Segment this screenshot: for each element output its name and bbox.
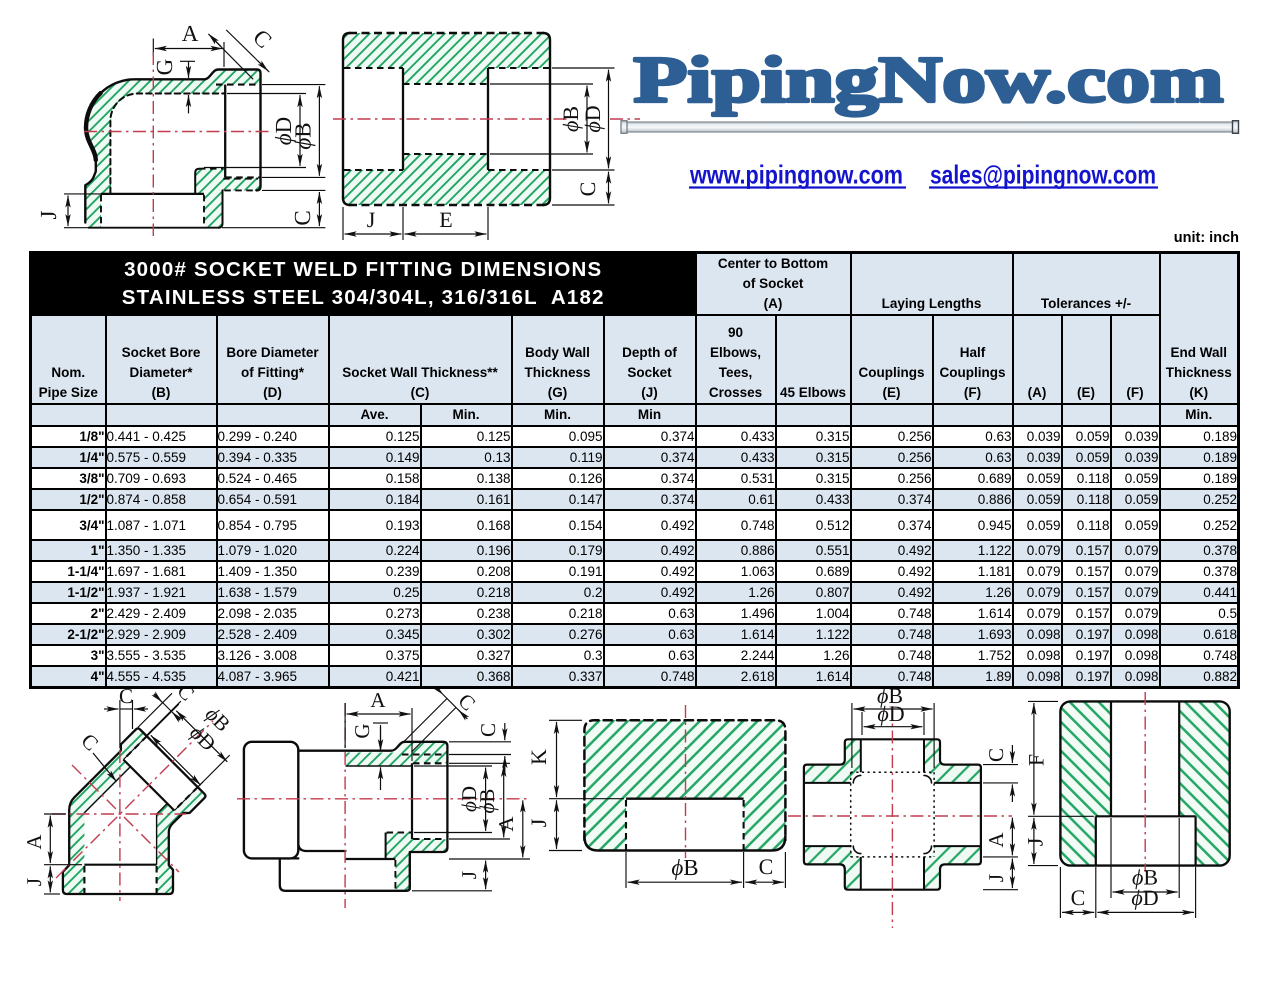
svg-text:A: A bbox=[984, 832, 1008, 848]
svg-text:C: C bbox=[248, 24, 277, 53]
svg-text:A: A bbox=[182, 21, 199, 46]
svg-text:G: G bbox=[350, 723, 374, 738]
svg-text:F: F bbox=[1024, 754, 1049, 766]
svg-text:A: A bbox=[22, 834, 46, 850]
svg-text:C: C bbox=[575, 182, 600, 197]
svg-text:C: C bbox=[1071, 885, 1086, 910]
svg-text:J: J bbox=[984, 874, 1008, 882]
svg-text:J: J bbox=[22, 878, 46, 886]
svg-text:ϕD: ϕD bbox=[580, 105, 605, 132]
svg-text:ϕD: ϕD bbox=[1131, 885, 1158, 910]
svg-text:A: A bbox=[494, 816, 518, 832]
svg-text:J: J bbox=[36, 210, 61, 219]
svg-text:ϕB: ϕB bbox=[671, 855, 698, 880]
svg-text:E: E bbox=[439, 207, 452, 232]
svg-text:PipingNow.com: PipingNow.com bbox=[634, 43, 1224, 116]
svg-text:ϕB: ϕB bbox=[475, 789, 499, 814]
svg-text:sales@pipingnow.com: sales@pipingnow.com bbox=[930, 160, 1156, 190]
svg-text:J: J bbox=[1023, 837, 1048, 846]
svg-text:ϕB: ϕB bbox=[291, 122, 316, 149]
svg-text:G: G bbox=[152, 59, 177, 76]
svg-text:J: J bbox=[457, 871, 481, 879]
svg-text:ϕD: ϕD bbox=[877, 701, 904, 726]
svg-text:C: C bbox=[476, 723, 500, 737]
svg-text:C: C bbox=[290, 210, 315, 225]
svg-text:www.pipingnow.com: www.pipingnow.com bbox=[689, 160, 903, 190]
svg-text:C: C bbox=[759, 854, 774, 879]
svg-text:J: J bbox=[367, 207, 376, 232]
svg-text:C: C bbox=[984, 748, 1008, 762]
svg-text:C: C bbox=[77, 729, 104, 756]
svg-text:J: J bbox=[526, 818, 551, 827]
svg-text:C: C bbox=[454, 689, 481, 716]
svg-text:K: K bbox=[526, 749, 551, 765]
svg-text:A: A bbox=[370, 688, 386, 712]
